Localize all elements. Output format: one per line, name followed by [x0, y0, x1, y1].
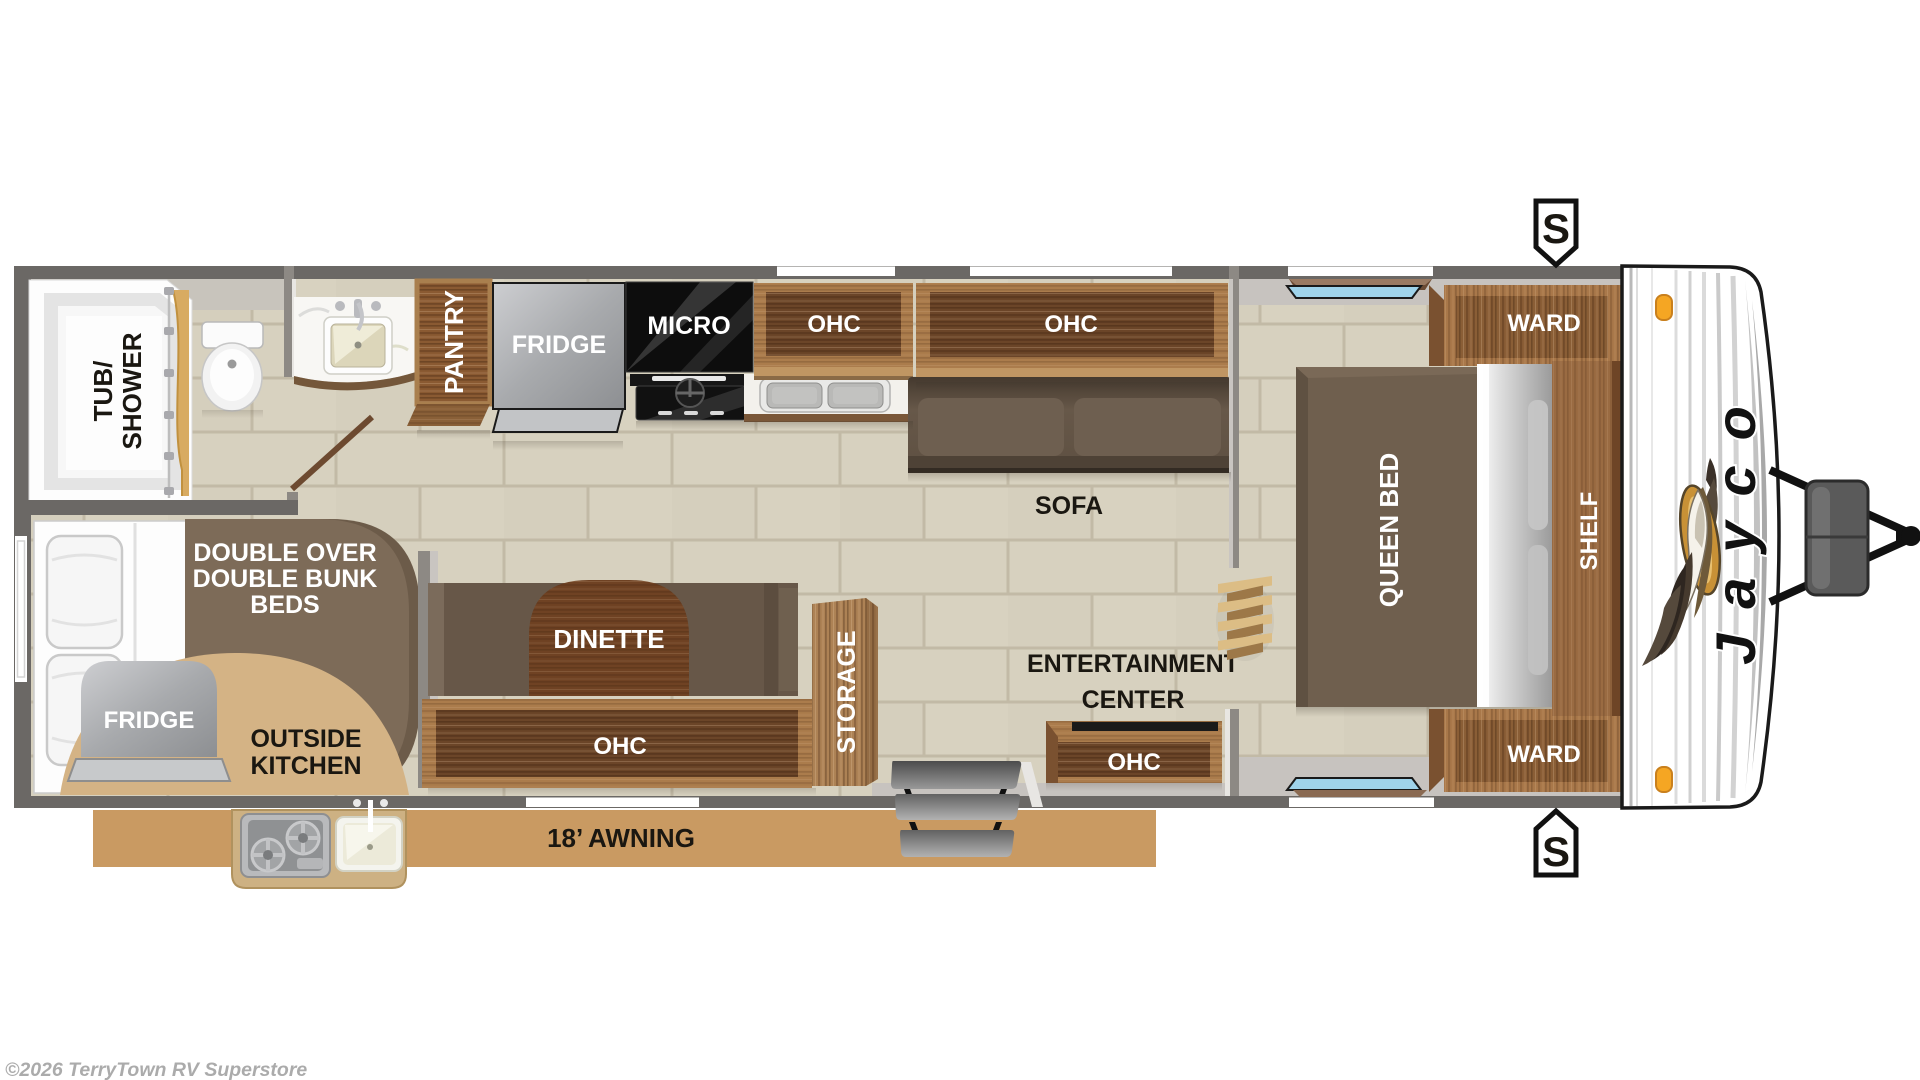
svg-text:DOUBLE OVER: DOUBLE OVER: [193, 539, 376, 567]
svg-text:DOUBLE BUNK: DOUBLE BUNK: [193, 565, 378, 593]
svg-text:MICRO: MICRO: [647, 312, 730, 340]
svg-text:S: S: [1542, 205, 1570, 252]
svg-text:FRIDGE: FRIDGE: [104, 707, 195, 734]
svg-text:OHC: OHC: [807, 311, 860, 338]
svg-text:DINETTE: DINETTE: [553, 624, 664, 654]
svg-text:OHC: OHC: [1107, 749, 1160, 776]
svg-text:18’ AWNING: 18’ AWNING: [547, 823, 695, 853]
svg-text:QUEEN BED: QUEEN BED: [1374, 453, 1404, 608]
svg-text:CENTER: CENTER: [1082, 686, 1185, 714]
svg-text:OUTSIDE: OUTSIDE: [250, 725, 361, 753]
svg-text:WARD: WARD: [1507, 741, 1580, 768]
svg-text:S: S: [1542, 828, 1570, 875]
svg-text:BEDS: BEDS: [250, 591, 319, 619]
svg-text:FRIDGE: FRIDGE: [512, 331, 606, 359]
svg-text:SHOWER: SHOWER: [117, 332, 147, 449]
svg-text:PANTRY: PANTRY: [439, 290, 469, 394]
svg-text:OHC: OHC: [593, 733, 646, 760]
svg-text:SOFA: SOFA: [1035, 492, 1103, 520]
svg-text:©2026 TerryTown RV Superstore: ©2026 TerryTown RV Superstore: [5, 1059, 307, 1080]
svg-text:WARD: WARD: [1507, 310, 1580, 337]
svg-text:ENTERTAINMENT: ENTERTAINMENT: [1027, 650, 1239, 678]
svg-text:SHELF: SHELF: [1576, 492, 1603, 571]
svg-text:KITCHEN: KITCHEN: [250, 752, 361, 780]
svg-text:TUB/: TUB/: [88, 361, 118, 422]
svg-text:STORAGE: STORAGE: [833, 630, 861, 753]
svg-text:OHC: OHC: [1044, 311, 1097, 338]
